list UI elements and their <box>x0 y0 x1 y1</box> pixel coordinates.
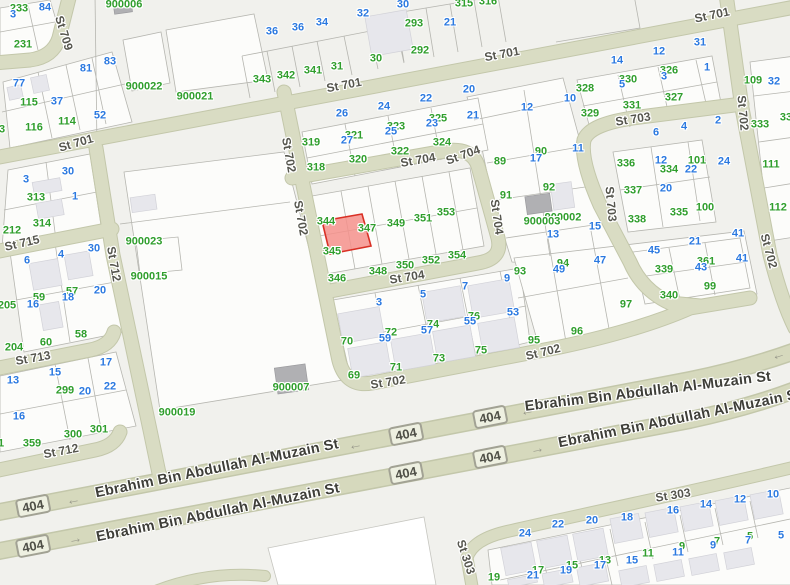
parcel-number-label: 24 <box>519 529 531 540</box>
parcel-number-label: 97 <box>620 300 632 311</box>
parcel-number-label: 231 <box>14 40 32 51</box>
parcel-number-label: 900007 <box>273 383 310 394</box>
parcel-number-label: 900006 <box>106 0 143 11</box>
map-canvas[interactable]: 2332319000061151141163900022900021343342… <box>0 0 790 585</box>
parcel-number-label: 354 <box>448 251 466 262</box>
parcel-number-label: 16 <box>13 412 25 423</box>
parcel-number-label: 15 <box>49 368 61 379</box>
oneway-arrow-icon: → <box>67 530 83 546</box>
parcel-number-label: 17 <box>594 561 606 572</box>
parcel-number-label: 6 <box>24 256 30 267</box>
parcel-number-label: 70 <box>341 337 353 348</box>
parcel-number-label: 7 <box>462 282 468 293</box>
parcel-number-label: 11 <box>572 144 584 155</box>
parcel-number-label: 18 <box>62 293 74 304</box>
parcel-number-label: 336 <box>617 159 635 170</box>
route-404-shield: 404 <box>388 460 425 485</box>
parcel-number-label: 96 <box>571 327 583 338</box>
parcel-number-label: 4 <box>681 122 687 133</box>
parcel-number-label: 320 <box>349 155 367 166</box>
street-name-label: St 703 <box>603 186 618 222</box>
parcel-number-label: 301 <box>90 425 108 436</box>
parcel-number-label: 1 <box>0 439 4 450</box>
parcel-number-label: 89 <box>494 157 506 168</box>
parcel-number-label: 337 <box>624 186 642 197</box>
parcel-number-label: 9 <box>710 541 716 552</box>
parcel-number-label: 299 <box>56 386 74 397</box>
parcel-number-label: 1 <box>704 63 710 74</box>
parcel-number-label: 9 <box>504 274 510 285</box>
parcel-number-label: 204 <box>5 343 23 354</box>
parcel-number-label: 900019 <box>159 408 196 419</box>
parcel-number-label: 340 <box>660 291 678 302</box>
parcel-number-label: 27 <box>341 136 353 147</box>
parcel-number-label: 58 <box>75 330 87 341</box>
parcel-number-label: 11 <box>672 548 684 559</box>
parcel-number-label: 31 <box>694 38 706 49</box>
route-404-shield: 404 <box>15 493 52 518</box>
parcel-number-label: 81 <box>80 64 92 75</box>
parcel-number-label: 20 <box>586 516 598 527</box>
street-name-label: St 303 <box>655 486 692 503</box>
parcel-number-label: 57 <box>421 326 433 337</box>
parcel-number-label: 293 <box>405 19 423 30</box>
parcel-number-label: 19 <box>488 573 500 584</box>
street-name-label: St 701 <box>57 132 94 153</box>
parcel-number-label: 348 <box>369 267 387 278</box>
parcel-number-label: 30 <box>370 54 382 65</box>
street-name-label: St 704 <box>489 199 506 236</box>
parcel-number-label: 12 <box>734 495 746 506</box>
parcel-number-label: 22 <box>104 382 116 393</box>
street-name-label: St 702 <box>735 95 750 131</box>
parcel-number-label: 12 <box>521 103 533 114</box>
parcel-number-label: 55 <box>464 317 476 328</box>
parcel-number-label: 341 <box>304 66 322 77</box>
parcel-number-label: 15 <box>589 222 601 233</box>
parcel-number-label: 359 <box>23 439 41 450</box>
parcel-number-label: 314 <box>33 219 51 230</box>
parcel-number-label: 52 <box>94 111 106 122</box>
parcel-number-label: 21 <box>467 111 479 122</box>
parcel-number-label: 4 <box>58 250 64 261</box>
street-name-label: St 709 <box>53 14 75 51</box>
parcel-number-label: 14 <box>611 56 623 67</box>
oneway-arrow-icon: ← <box>65 491 81 507</box>
parcel-number-label: 19 <box>560 566 572 577</box>
street-name-label: St 712 <box>43 442 80 461</box>
parcel-number-label: 333 <box>751 120 769 131</box>
parcel-number-label: 346 <box>328 274 346 285</box>
parcel-number-label: 77 <box>13 79 25 90</box>
parcel-number-label: 349 <box>387 219 405 230</box>
parcel-number-label: 327 <box>665 93 683 104</box>
parcel-number-label: 111 <box>762 160 779 171</box>
street-name-label: St 702 <box>370 373 407 390</box>
parcel-number-label: 53 <box>507 308 519 319</box>
parcel-number-label: 900022 <box>126 82 163 93</box>
parcel-number-label: 3 <box>0 125 5 136</box>
parcel-number-label: 17 <box>530 154 542 165</box>
parcel-number-label: 352 <box>422 256 440 267</box>
parcel-number-label: 331 <box>623 101 641 112</box>
oneway-arrow-icon: ← <box>519 402 535 418</box>
parcel-number-label: 47 <box>594 256 606 267</box>
oneway-arrow-icon: → <box>529 440 545 456</box>
street-name-label: St 702 <box>280 137 298 174</box>
parcel-number-label: 31 <box>331 62 343 73</box>
street-name-label: St 702 <box>759 232 780 269</box>
parcel-number-label: 12 <box>653 47 665 58</box>
parcel-number-label: 84 <box>39 3 51 14</box>
parcel-number-label: 343 <box>253 75 271 86</box>
street-name-label: St 303 <box>455 538 477 575</box>
parcel-number-label: 335 <box>670 208 688 219</box>
parcel-number-label: 316 <box>479 0 497 8</box>
parcel-number-label: 342 <box>277 71 295 82</box>
parcel-number-label: 318 <box>307 163 325 174</box>
oneway-arrow-icon: ← <box>769 345 787 363</box>
parcel-number-label: 15 <box>626 556 638 567</box>
parcel-number-label: 6 <box>653 128 659 139</box>
street-name-label: St 712 <box>105 246 123 283</box>
parcel-number-label: 319 <box>302 138 320 149</box>
parcel-number-label: 10 <box>767 490 779 501</box>
parcel-number-label: 43 <box>695 263 707 274</box>
street-name-label: St 701 <box>326 76 363 95</box>
parcel-number-label: 10 <box>564 94 576 105</box>
parcel-number-label: 23 <box>426 119 438 130</box>
parcel-number-label: 93 <box>514 267 526 278</box>
parcel-number-label: 2 <box>715 116 721 127</box>
parcel-number-label: 26 <box>336 109 348 120</box>
parcel-number-label: 83 <box>104 57 116 68</box>
parcel-number-label: 41 <box>732 229 744 240</box>
parcel-number-label: 315 <box>455 0 473 10</box>
parcel-number-label: 900003 <box>524 217 561 228</box>
parcel-number-label: 313 <box>27 193 45 204</box>
parcel-number-label: 24 <box>378 102 390 113</box>
parcel-number-label: 3 <box>23 175 29 186</box>
parcel-number-label: 24 <box>718 157 730 168</box>
parcel-number-label: 7 <box>745 536 751 547</box>
route-404-shield: 404 <box>15 533 52 558</box>
parcel-number-label: 3 <box>376 298 382 309</box>
parcel-number-label: 20 <box>94 286 106 297</box>
parcel-number-label: 20 <box>79 387 91 398</box>
parcel-number-label: 339 <box>655 265 673 276</box>
parcel-number-label: 33 <box>780 113 790 124</box>
parcel-number-label: 22 <box>685 165 697 176</box>
parcel-number-label: 92 <box>543 183 555 194</box>
street-name-label: St 702 <box>292 200 310 237</box>
parcel-number-label: 351 <box>414 214 432 225</box>
parcel-number-label: 37 <box>51 97 63 108</box>
parcel-number-label: 30 <box>397 0 409 11</box>
parcel-number-label: 34 <box>316 18 328 29</box>
parcel-number-label: 22 <box>420 94 432 105</box>
parcel-number-label: 13 <box>547 230 559 241</box>
parcel-number-label: 17 <box>100 358 112 369</box>
route-404-shield: 404 <box>388 421 425 446</box>
parcel-number-label: 25 <box>385 127 397 138</box>
parcel-number-label: 21 <box>527 571 539 582</box>
parcel-number-label: 900015 <box>131 272 168 283</box>
parcel-number-label: 345 <box>323 247 341 258</box>
parcel-number-label: 69 <box>348 371 360 382</box>
parcel-number-label: 75 <box>475 346 487 357</box>
parcel-number-label: 45 <box>648 246 660 257</box>
parcel-number-label: 20 <box>463 85 475 96</box>
parcel-number-label: 21 <box>444 18 456 29</box>
parcel-number-label: 353 <box>437 208 455 219</box>
label-layer: 2332319000061151141163900022900021343342… <box>0 0 790 585</box>
parcel-number-label: 14 <box>700 500 712 511</box>
route-404-shield: 404 <box>472 444 509 469</box>
parcel-number-label: 99 <box>704 282 716 293</box>
parcel-number-label: 112 <box>769 203 787 214</box>
parcel-number-label: 18 <box>621 513 633 524</box>
parcel-number-label: 100 <box>696 203 714 214</box>
parcel-number-label: 59 <box>379 334 391 345</box>
parcel-number-label: 20 <box>660 184 672 195</box>
parcel-number-label: 30 <box>62 167 74 178</box>
street-name-label: St 703 <box>615 110 652 127</box>
parcel-number-label: 324 <box>433 138 451 149</box>
parcel-number-label: 300 <box>64 430 82 441</box>
parcel-number-label: 5 <box>619 80 625 91</box>
parcel-number-label: 11 <box>642 549 654 560</box>
parcel-number-label: 21 <box>689 237 701 248</box>
parcel-number-label: 30 <box>88 244 100 255</box>
parcel-number-label: 329 <box>581 109 599 120</box>
parcel-number-label: 32 <box>768 77 780 88</box>
parcel-number-label: 1 <box>72 192 78 203</box>
parcel-number-label: 3 <box>10 10 16 21</box>
parcel-number-label: 16 <box>667 506 679 517</box>
parcel-number-label: 115 <box>20 98 38 109</box>
parcel-number-label: 900023 <box>126 237 163 248</box>
parcel-number-label: 36 <box>266 27 278 38</box>
street-name-label: St 701 <box>693 5 730 24</box>
parcel-number-label: 344 <box>317 217 335 228</box>
parcel-number-label: 5 <box>778 531 784 542</box>
parcel-number-label: 3 <box>661 72 667 83</box>
parcel-number-label: 114 <box>58 117 76 128</box>
parcel-number-label: 328 <box>576 84 594 95</box>
parcel-number-label: 109 <box>744 76 762 87</box>
parcel-number-label: 41 <box>736 254 748 265</box>
parcel-number-label: 36 <box>292 23 304 34</box>
parcel-number-label: 292 <box>411 46 429 57</box>
parcel-number-label: 60 <box>40 338 52 349</box>
parcel-number-label: 12 <box>655 156 667 167</box>
parcel-number-label: 116 <box>25 123 43 134</box>
street-name-label: St 704 <box>389 268 426 285</box>
parcel-number-label: 900021 <box>177 92 214 103</box>
parcel-number-label: 5 <box>420 290 426 301</box>
parcel-number-label: 212 <box>3 226 21 237</box>
parcel-number-label: 73 <box>433 354 445 365</box>
parcel-number-label: 205 <box>0 301 16 312</box>
parcel-number-label: 338 <box>628 215 646 226</box>
route-404-shield: 404 <box>472 404 509 429</box>
street-name-label: St 701 <box>484 45 521 64</box>
parcel-number-label: 347 <box>358 224 376 235</box>
parcel-number-label: 49 <box>553 265 565 276</box>
parcel-number-label: 13 <box>7 376 19 387</box>
parcel-number-label: 32 <box>357 9 369 20</box>
parcel-number-label: 16 <box>27 300 39 311</box>
parcel-number-label: 22 <box>552 520 564 531</box>
oneway-arrow-icon: ← <box>347 436 363 452</box>
